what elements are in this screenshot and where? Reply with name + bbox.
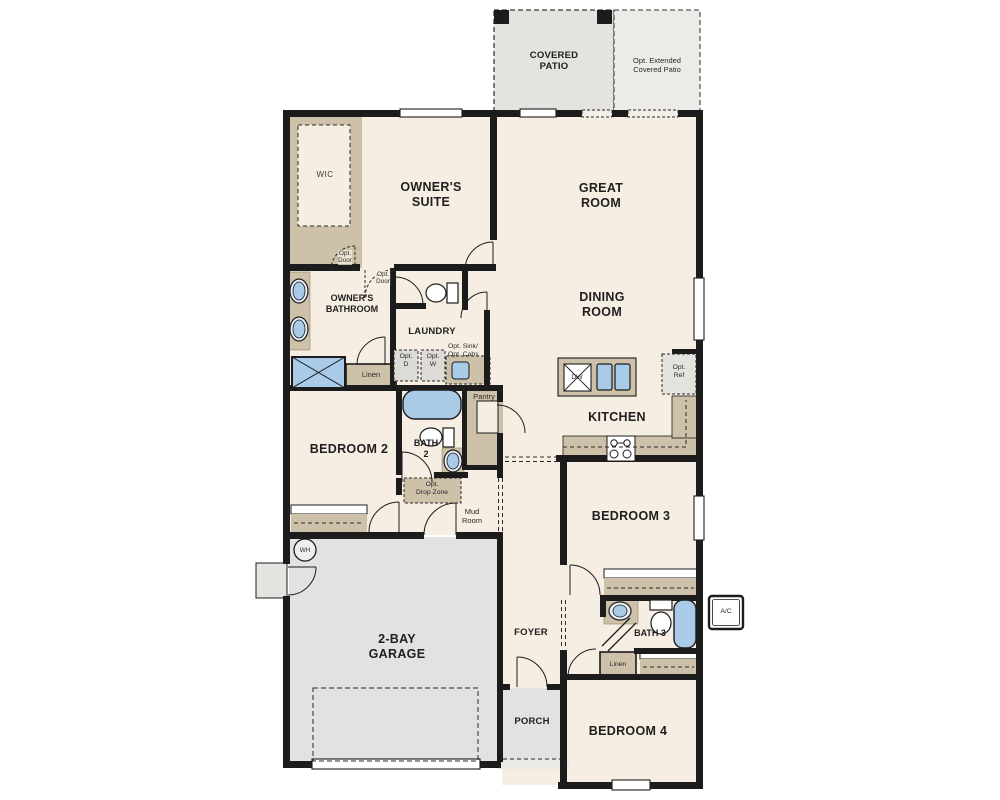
annotation-ac-unit: A/C (720, 608, 731, 616)
room-label-bath-3: BATH 3 (634, 628, 666, 639)
sink-icon (609, 602, 631, 620)
opt-patio-door (582, 110, 612, 117)
toilet-icon (426, 283, 458, 303)
room-label-owners-bathroom: OWNER'SBATHROOM (326, 293, 378, 314)
window (694, 278, 704, 340)
porch-step (497, 760, 569, 769)
room-label-bedroom-4: BEDROOM 4 (589, 724, 667, 739)
annotation-opt-door: Opt.Door (338, 250, 352, 265)
room-label-laundry: LAUNDRY (408, 326, 456, 337)
patio-post (597, 10, 612, 24)
shower-icon (292, 357, 345, 388)
annotation-water-heater: WH (300, 547, 311, 554)
annotation-opt-sink-cabs: Opt. Sink/Opt. Cabs (448, 343, 479, 359)
bedroom2-closet-shelf (291, 505, 367, 514)
floorplan-linework (0, 0, 1000, 800)
window (520, 109, 556, 117)
room-label-kitchen: KITCHEN (588, 410, 646, 425)
bathtub-icon (403, 390, 461, 419)
room-label-garage: 2-BAYGARAGE (369, 632, 426, 662)
annotation-linen: Linen (362, 371, 380, 380)
patio-post (494, 10, 509, 24)
room-label-bedroom-2: BEDROOM 2 (310, 442, 388, 457)
bedroom3-closet-shelf (604, 569, 697, 578)
pantry-door (477, 401, 498, 433)
room-label-foyer: FOYER (514, 627, 548, 638)
window (400, 109, 462, 117)
room-label-great-room: GREATROOM (579, 181, 623, 211)
laundry-sink-icon (452, 362, 469, 379)
opt-patio-door (628, 110, 678, 117)
bathtub-icon (674, 600, 696, 648)
stove-icon (607, 436, 635, 461)
sink-icon (444, 450, 462, 472)
room-label-mud-room: MudRoom (462, 508, 482, 526)
room-label-dining-room: DININGROOM (579, 290, 625, 320)
room-label-bedroom-3: BEDROOM 3 (592, 509, 670, 524)
room-label-porch: PORCH (514, 716, 549, 727)
window (612, 780, 650, 790)
annotation-opt-door: Opt.Door (376, 271, 390, 286)
annotation-opt-washer: Opt.W (427, 353, 440, 369)
room-label-owners-suite: OWNER'SSUITE (400, 180, 461, 210)
room-label-bath-2: BATH2 (414, 438, 438, 459)
garage-stoop (256, 563, 287, 598)
annotation-linen: Linen (610, 661, 627, 669)
annotation-dishwasher: DW (571, 374, 582, 382)
annotation-opt-ref: Opt.Ref (673, 364, 686, 380)
annotation-opt-dryer: Opt.D (400, 353, 413, 369)
room-label-covered-patio: COVEREDPATIO (530, 50, 578, 72)
room-label-opt-extended-patio: Opt. ExtendedCovered Patio (633, 57, 681, 75)
window (694, 496, 704, 540)
room-label-pantry: Pantry (473, 393, 495, 402)
room-label-wic: WIC (316, 170, 333, 179)
kitchen-counter-side (672, 396, 697, 438)
annotation-opt-drop-zone: Opt.Drop Zone (416, 481, 448, 497)
floor-plan: COVEREDPATIO Opt. ExtendedCovered Patio … (0, 0, 1000, 800)
